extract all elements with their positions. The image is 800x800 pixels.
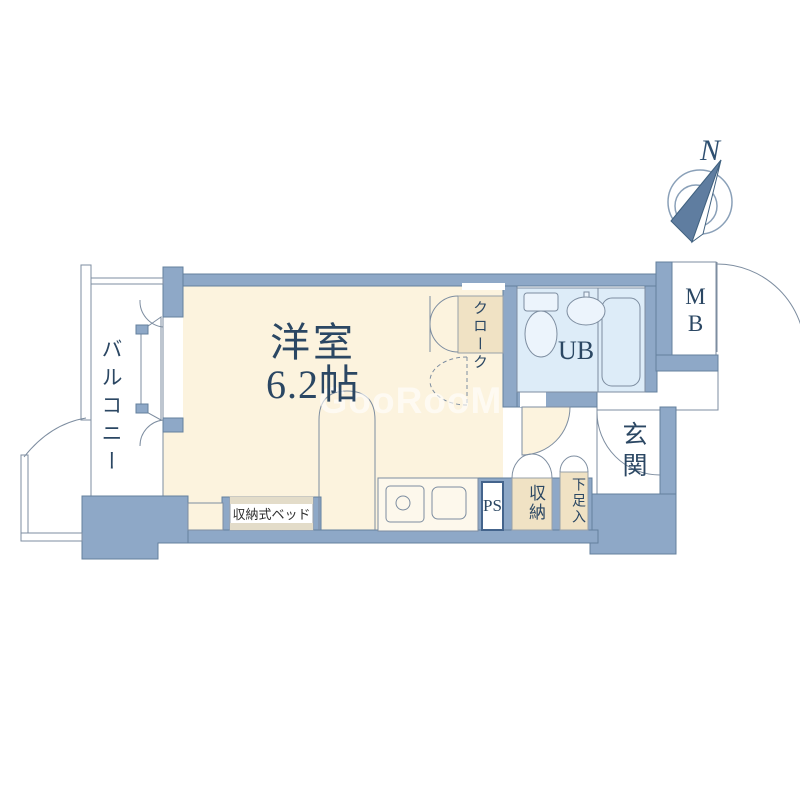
wall-left-of-mb [656, 262, 672, 355]
top-wall-window-bar [462, 283, 505, 290]
wall-right-of-ub [645, 286, 657, 392]
main-room-size-label: 6.2帖 [213, 352, 413, 410]
balcony-rail-top [91, 278, 163, 284]
window-frame-top [136, 325, 148, 334]
kitchen [378, 478, 478, 531]
balcony-partition-door-arc [24, 418, 86, 457]
wall-pillar-top-left [163, 267, 183, 317]
entrance-label: 玄関 [614, 421, 650, 483]
cloak-label: クローク [469, 300, 490, 372]
ub-door-opening [520, 392, 546, 407]
shoe-cabinet-label: 下足入 [567, 477, 587, 525]
wall-bed-stub-right [313, 497, 321, 530]
sink-basin [567, 297, 605, 325]
balcony-rail-bottom [21, 533, 82, 541]
wall-left-of-ub [503, 286, 517, 407]
wall-below-mb [656, 355, 718, 371]
window-frame-bottom [136, 404, 148, 413]
meter-box-label: MB [682, 284, 708, 338]
floor-plan: GooRooM 洋室 6.2帖 バルコニー クローク UB MB 玄関 PS 収… [0, 0, 800, 800]
balcony-lower-floor [28, 455, 81, 533]
main-room-floor-left [163, 430, 184, 497]
front-door-arc [717, 264, 800, 352]
balcony-label: バルコニー [96, 338, 126, 478]
wall-bottom [150, 530, 598, 543]
compass [668, 160, 732, 242]
wall-right-of-entrance [660, 407, 676, 494]
folding-bed-edge-bottom [230, 523, 313, 530]
folding-bed-label: 収納式ベッド [231, 504, 312, 523]
pipe-space-label: PS [480, 496, 505, 516]
compass-north-label: N [700, 134, 720, 168]
balcony-rail-lower-left [21, 455, 28, 534]
toilet-tank [524, 293, 558, 311]
unit-bath-label: UB [550, 336, 602, 366]
wall-bottom-left-block [82, 496, 188, 559]
bed-alcove [188, 503, 223, 530]
balcony-rail-left [81, 265, 91, 420]
folding-bed-edge-top [230, 497, 313, 504]
wall-window-bottom [163, 418, 183, 432]
wall-bottom-right-block [590, 494, 676, 554]
storage-label: 収納 [523, 484, 548, 522]
wall-top [163, 274, 658, 286]
